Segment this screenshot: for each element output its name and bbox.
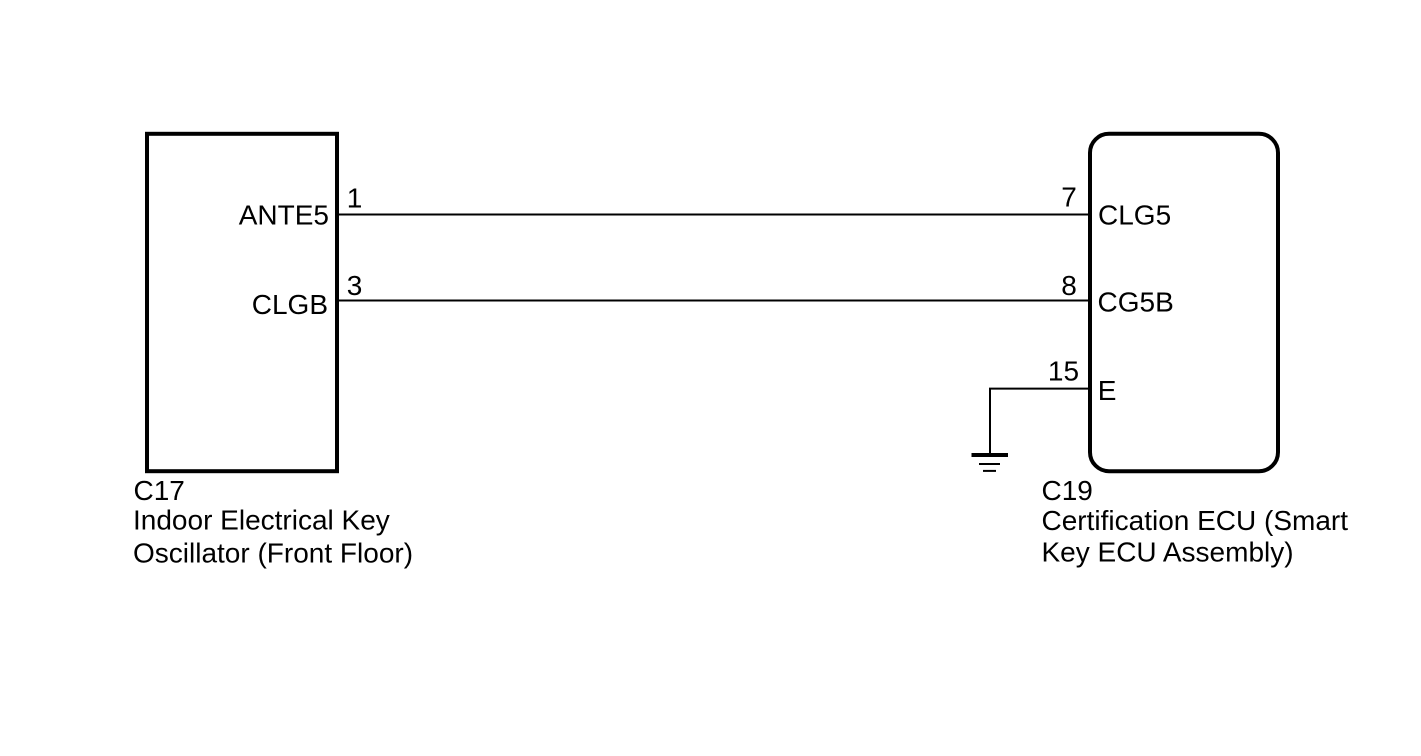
svg-text:Oscillator (Front Floor): Oscillator (Front Floor) xyxy=(133,537,413,568)
svg-text:CG5B: CG5B xyxy=(1098,286,1174,317)
svg-text:7: 7 xyxy=(1061,181,1077,212)
svg-text:ANTE5: ANTE5 xyxy=(239,200,329,231)
svg-text:E: E xyxy=(1098,375,1117,406)
svg-text:C19: C19 xyxy=(1042,475,1093,506)
svg-text:3: 3 xyxy=(347,270,363,301)
svg-text:CLG5: CLG5 xyxy=(1098,200,1171,231)
svg-text:Key ECU Assembly): Key ECU Assembly) xyxy=(1042,536,1294,567)
svg-text:15: 15 xyxy=(1048,356,1079,387)
svg-text:CLGB: CLGB xyxy=(252,289,328,320)
svg-text:Certification ECU (Smart: Certification ECU (Smart xyxy=(1042,505,1349,536)
svg-text:Indoor Electrical Key: Indoor Electrical Key xyxy=(133,505,390,536)
svg-text:C17: C17 xyxy=(134,475,185,506)
svg-text:8: 8 xyxy=(1061,270,1077,301)
svg-text:1: 1 xyxy=(347,182,363,213)
